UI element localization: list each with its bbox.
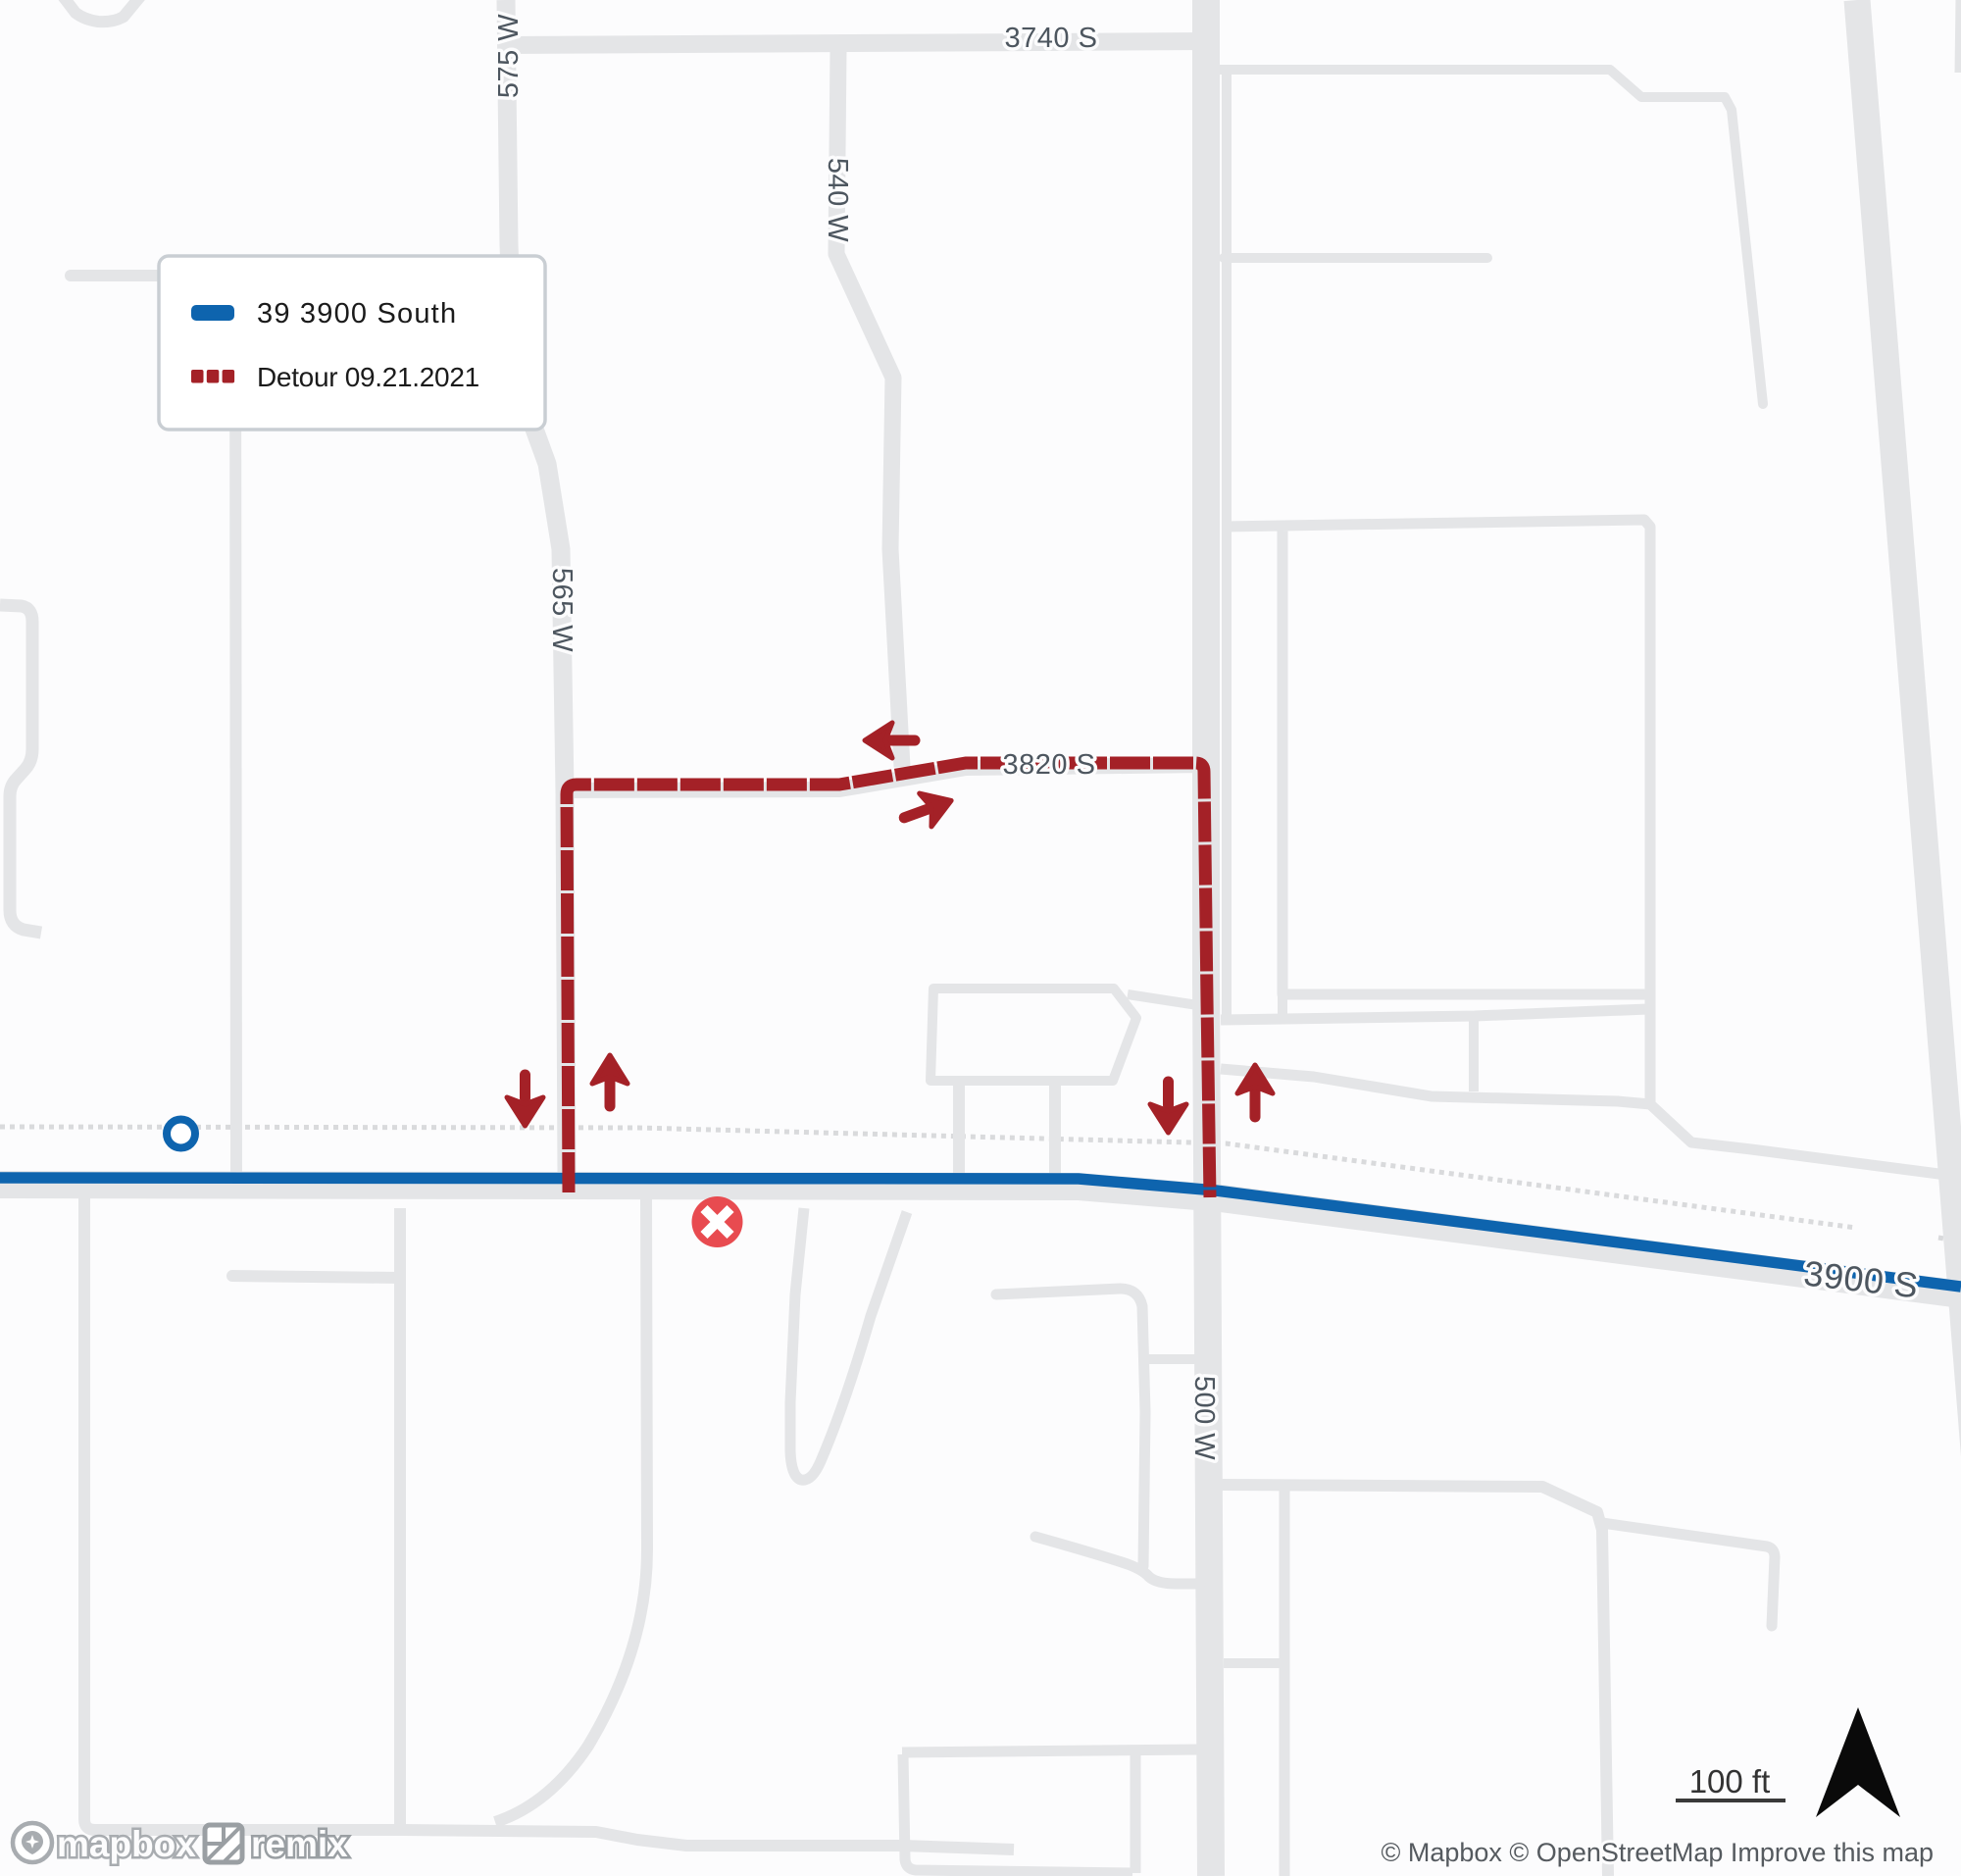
svg-text:100 ft: 100 ft	[1689, 1763, 1771, 1800]
svg-text:575 W: 575 W	[493, 14, 525, 98]
svg-text:500 W: 500 W	[1188, 1376, 1220, 1460]
svg-text:remix: remix	[251, 1824, 348, 1864]
svg-text:3740 S: 3740 S	[1005, 23, 1098, 54]
svg-text:540 W: 540 W	[822, 158, 853, 242]
svg-text:565 W: 565 W	[546, 568, 578, 652]
svg-text:© Mapbox © OpenStreetMap Impro: © Mapbox © OpenStreetMap Improve this ma…	[1381, 1838, 1934, 1867]
svg-text:mapbox: mapbox	[57, 1824, 196, 1864]
svg-text:Detour 09.21.2021: Detour 09.21.2021	[257, 362, 479, 392]
svg-text:39 3900 South: 39 3900 South	[257, 298, 457, 330]
svg-text:3820 S: 3820 S	[1003, 749, 1096, 781]
